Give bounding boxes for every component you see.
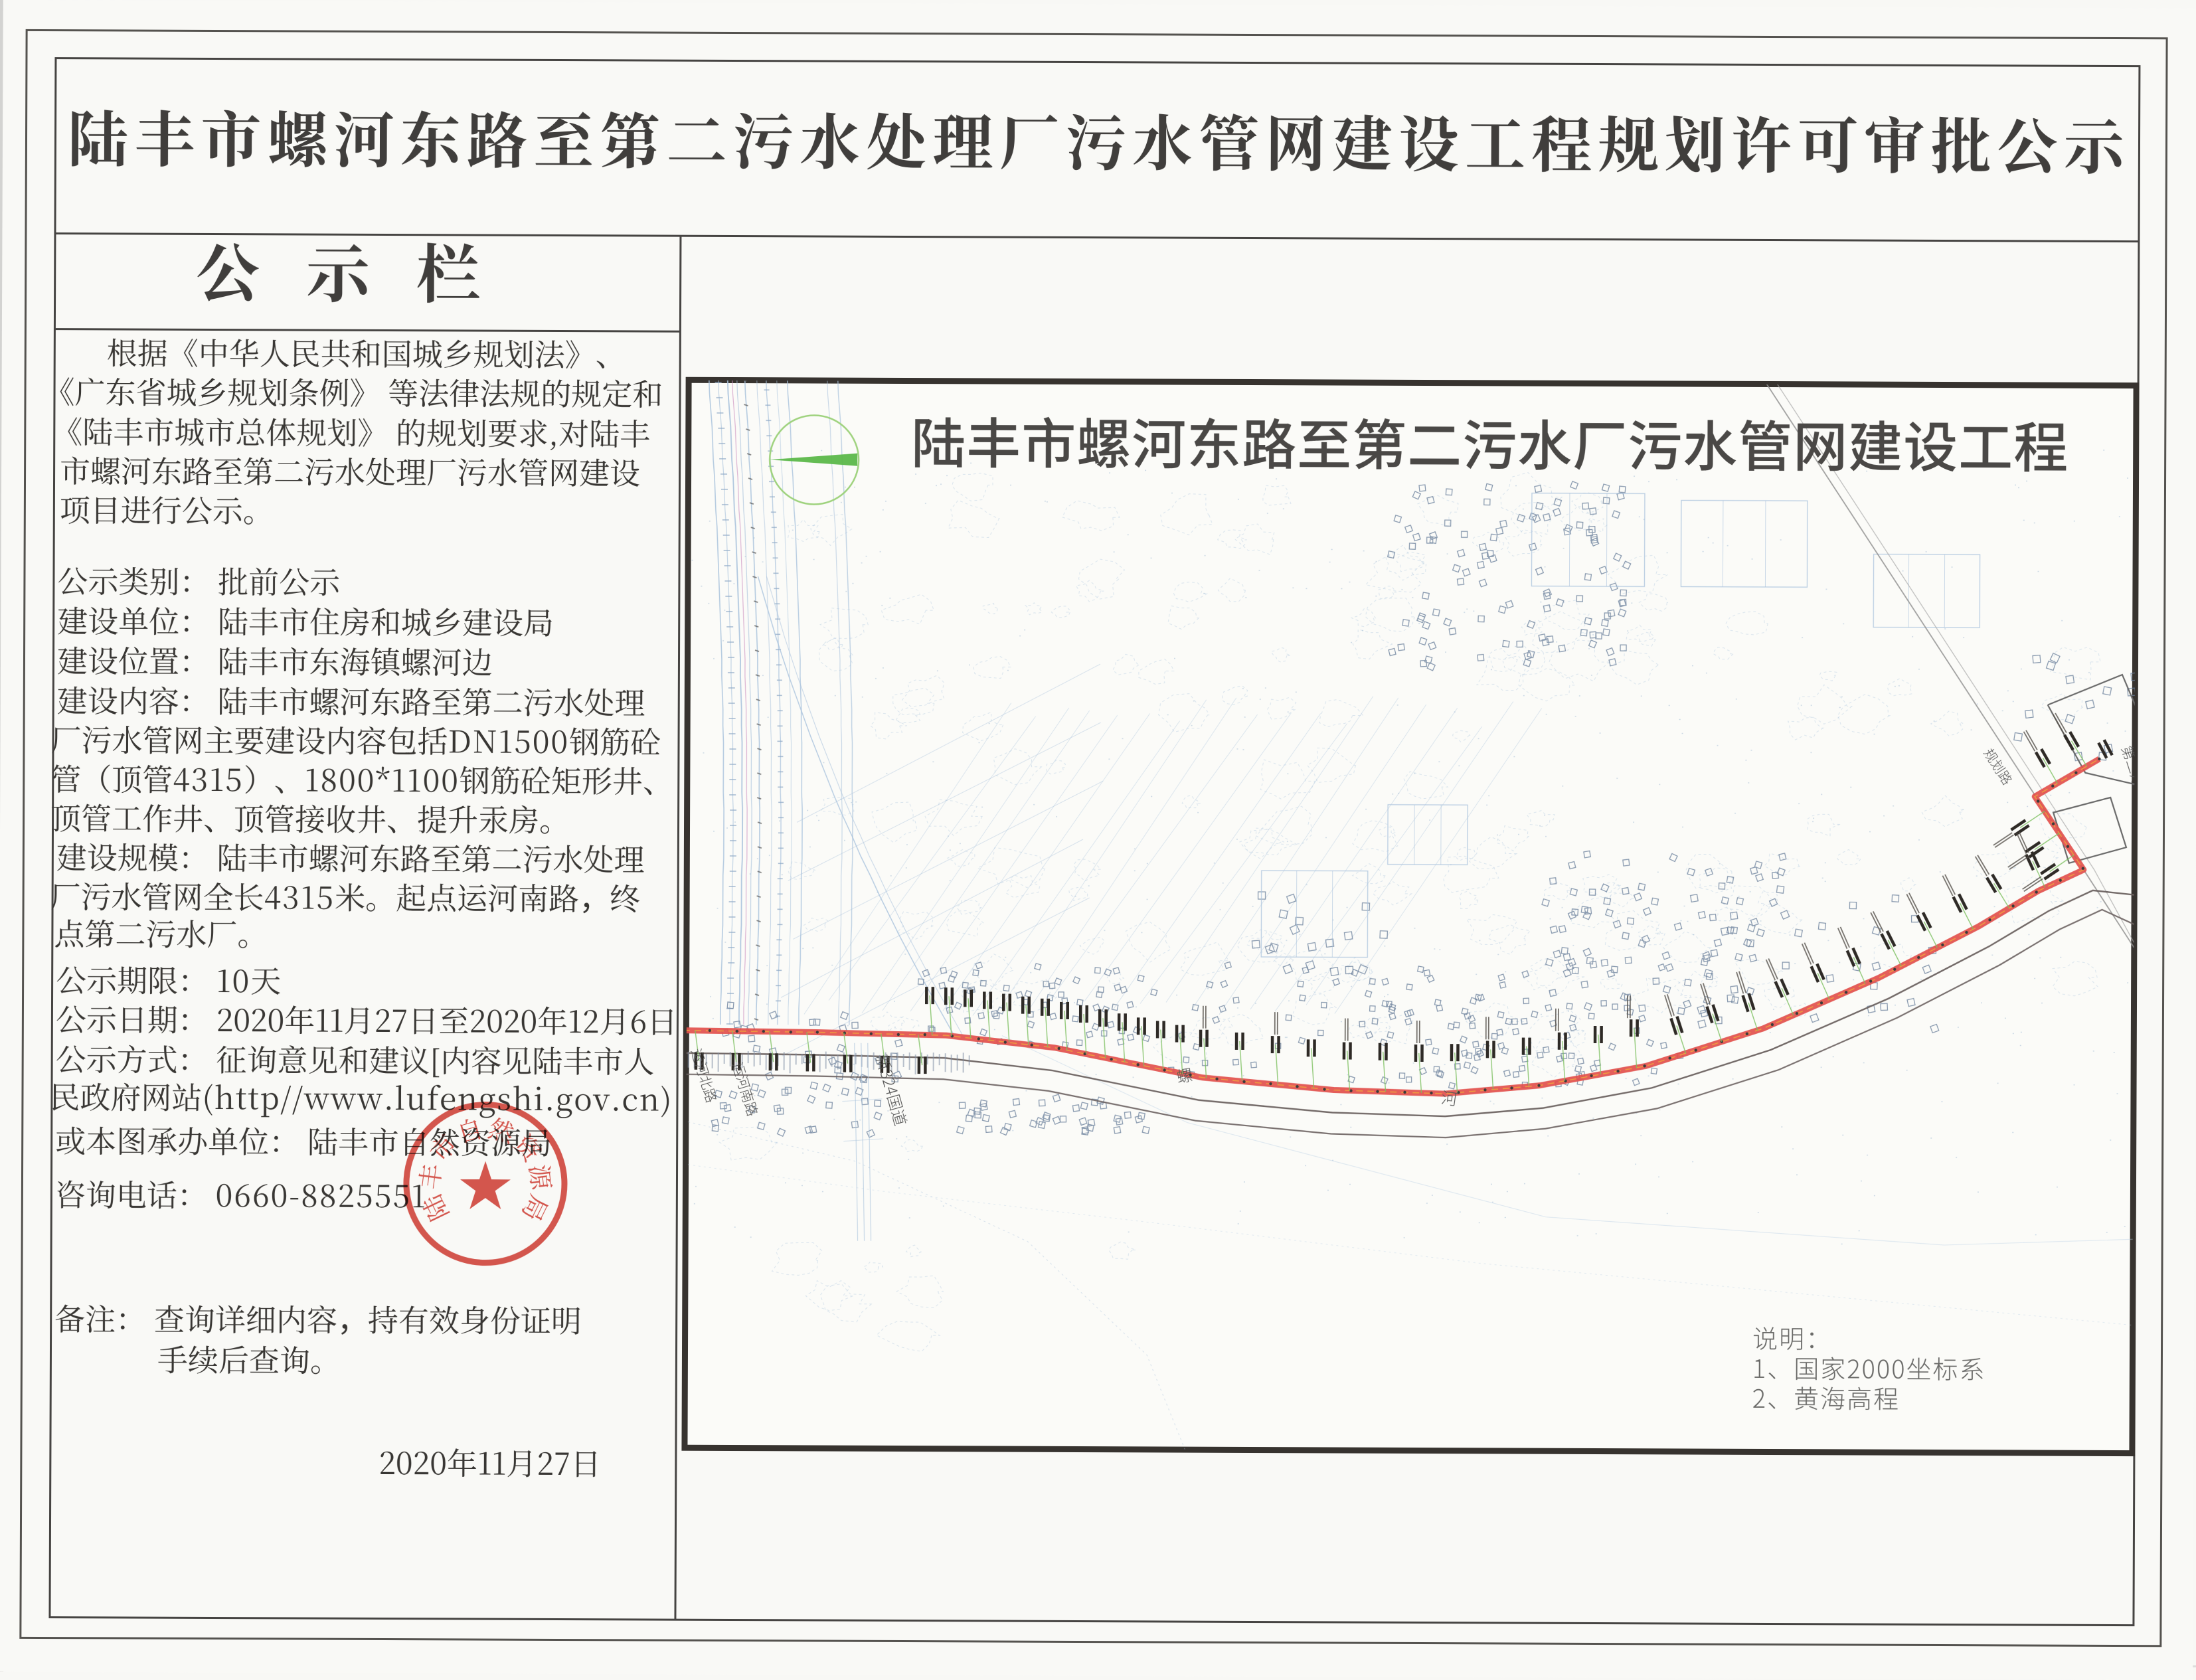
svg-text:源: 源 bbox=[523, 1162, 562, 1192]
svg-text:河: 河 bbox=[1440, 1084, 1459, 1110]
svg-text:丰: 丰 bbox=[409, 1161, 448, 1191]
